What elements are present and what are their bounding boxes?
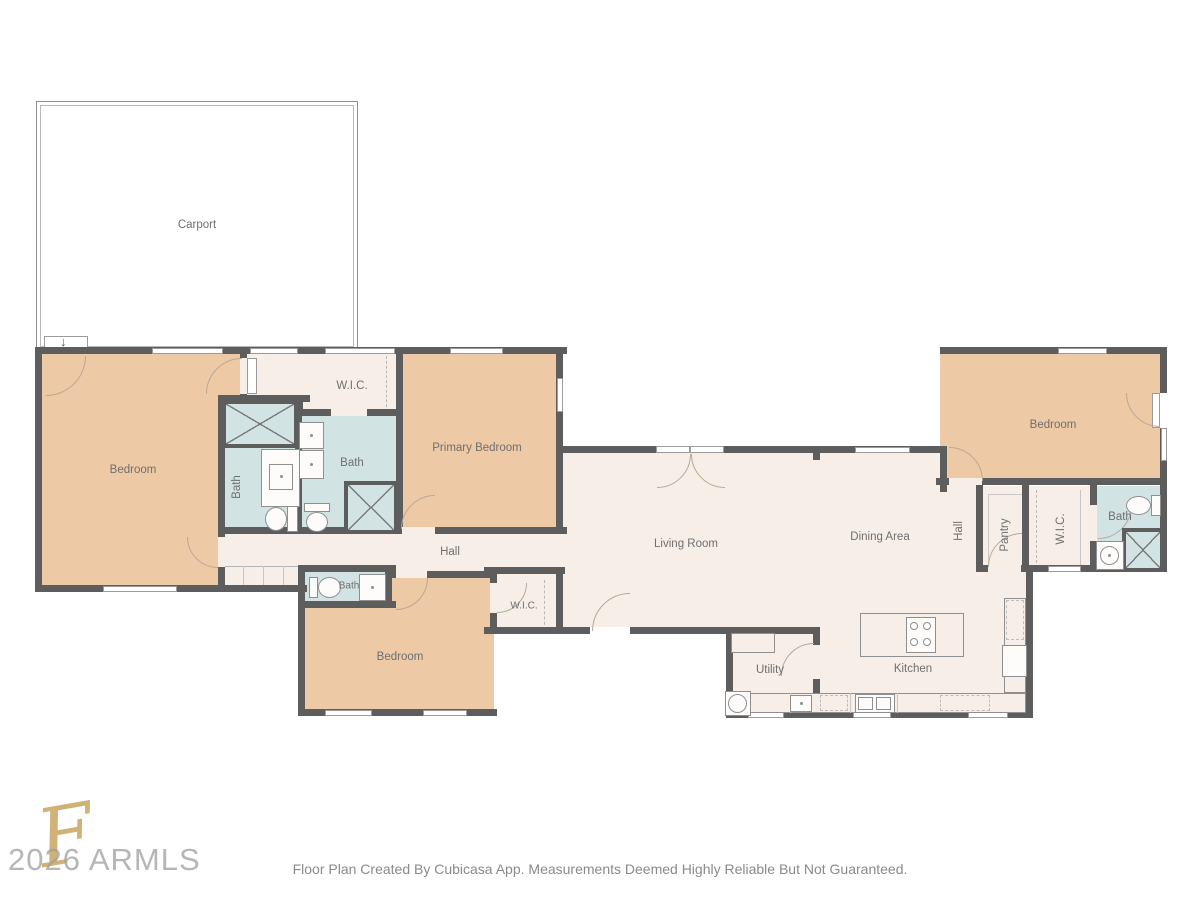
toilet — [306, 512, 328, 532]
window — [250, 348, 298, 354]
washer-drum — [728, 694, 747, 713]
door-arc — [949, 447, 983, 481]
wic-rod-line — [544, 580, 545, 630]
door-arc — [187, 537, 218, 568]
door-arc — [401, 495, 435, 529]
door-arc — [1126, 393, 1160, 427]
wall — [298, 601, 305, 716]
room-label-primary-bedroom: Primary Bedroom — [432, 442, 521, 454]
door-arc — [691, 454, 725, 488]
toilet-tank — [309, 577, 318, 598]
shower — [1122, 528, 1164, 572]
refrigerator — [1002, 645, 1027, 677]
door-gap — [218, 537, 225, 567]
faucet-dot — [310, 463, 313, 466]
door-leaf — [247, 358, 257, 394]
room-label-hall: Hall — [440, 546, 460, 558]
closet-divider — [263, 566, 264, 586]
wic-rod-line — [386, 356, 387, 412]
burner-icon — [910, 638, 918, 646]
burner-icon — [923, 622, 931, 630]
window — [450, 348, 503, 354]
window — [103, 586, 177, 592]
wall — [35, 347, 42, 592]
door-gap — [1090, 505, 1097, 541]
sink-basin — [876, 697, 891, 710]
door-gap — [490, 583, 497, 613]
room-label-living-room: Living Room — [654, 538, 718, 550]
faucet-dot — [371, 586, 374, 589]
wall — [940, 347, 1167, 354]
room-label-wic-bottom: W.I.C. — [510, 601, 537, 612]
door-arc — [781, 643, 814, 676]
room-label-bedroom-right: Bedroom — [1030, 419, 1077, 431]
cabinet — [940, 695, 990, 711]
toilet-tank — [304, 503, 330, 512]
door-arc — [592, 593, 630, 631]
cabinet — [1006, 600, 1024, 640]
toilet — [265, 507, 287, 531]
wic-rod-line — [1036, 490, 1037, 568]
exterior-door-gap — [1160, 393, 1167, 428]
faucet-dot — [310, 434, 313, 437]
room-label-bath-hall: Bath — [339, 581, 360, 592]
counter-divider — [897, 693, 898, 713]
window — [152, 348, 223, 354]
counter-divider — [850, 693, 851, 713]
room-label-hall-right: Hall — [953, 521, 965, 541]
window — [325, 348, 395, 354]
room-label-bath-primary: Bath — [340, 457, 364, 469]
door-leaf — [656, 446, 690, 453]
closet-divider — [243, 566, 244, 586]
wall — [298, 565, 396, 572]
wic-shelf-line — [1080, 490, 1081, 568]
door-arc — [46, 356, 86, 396]
window — [1161, 428, 1167, 461]
dishwasher — [820, 695, 848, 711]
room-label-carport: Carport — [178, 219, 216, 231]
burner-icon — [923, 638, 931, 646]
toilet — [318, 577, 341, 598]
room-label-wic-right: W.I.C. — [1055, 513, 1067, 544]
window — [855, 447, 910, 453]
disclaimer-text: Floor Plan Created By Cubicasa App. Meas… — [0, 861, 1200, 877]
window — [325, 710, 372, 716]
room-label-bath-right: Bath — [1108, 511, 1132, 523]
shower — [222, 400, 298, 448]
wall — [385, 565, 392, 608]
room-label-pantry: Pantry — [999, 518, 1011, 551]
wall — [1022, 485, 1029, 572]
door-gap — [331, 409, 367, 416]
wall — [976, 485, 983, 572]
door-gap — [813, 645, 820, 679]
shower — [344, 481, 398, 534]
room-label-bath-left: Bath — [231, 475, 243, 499]
room-label-dining-area: Dining Area — [850, 531, 909, 543]
room-label-wic-primary: W.I.C. — [336, 380, 367, 392]
wall — [556, 627, 733, 634]
door-gap — [396, 571, 427, 578]
toilet-tank — [1151, 495, 1161, 516]
sink-basin — [858, 697, 873, 710]
wall — [813, 446, 820, 460]
window — [423, 710, 467, 716]
wall — [298, 601, 396, 608]
faucet-dot — [1108, 554, 1111, 557]
door-arc — [206, 358, 242, 394]
faucet-dot — [800, 702, 803, 705]
door-leaf — [690, 446, 724, 453]
faucet-dot — [280, 475, 283, 478]
door-arc — [396, 578, 428, 610]
wall — [556, 347, 563, 534]
closet-divider — [283, 566, 284, 586]
room-label-utility: Utility — [756, 664, 784, 676]
room-label-bedroom-left: Bedroom — [110, 464, 157, 476]
wall — [940, 446, 947, 492]
toilet-tank — [287, 506, 298, 532]
floor-plan-canvas: ↓ — [0, 0, 1200, 900]
utility-counter — [731, 633, 775, 653]
room-label-bedroom-bottom: Bedroom — [377, 651, 424, 663]
room-label-kitchen: Kitchen — [894, 663, 932, 675]
wall — [556, 567, 563, 634]
window — [1058, 348, 1107, 354]
window — [1048, 566, 1081, 572]
burner-icon — [910, 622, 918, 630]
wall — [1026, 565, 1033, 718]
window — [557, 378, 563, 412]
door-arc — [657, 454, 691, 488]
cooktop — [906, 617, 936, 653]
